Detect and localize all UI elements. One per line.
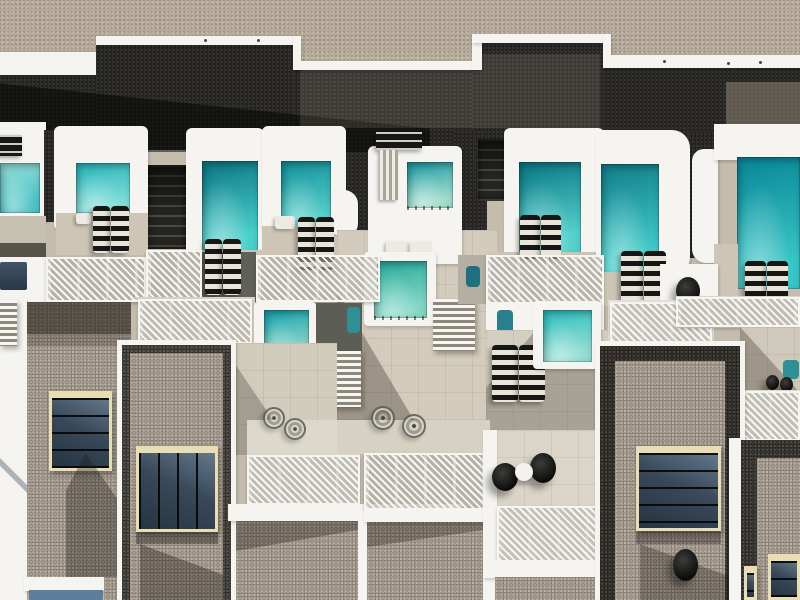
- stairs-1: [148, 165, 186, 249]
- louver-pergola-1: [433, 299, 475, 351]
- parapet-bolt: [257, 39, 260, 42]
- unit4-pool-jets: [407, 206, 453, 210]
- parapet-left: [0, 52, 96, 75]
- bean-bag: [766, 375, 779, 390]
- rooftop-gap-white: [358, 521, 367, 600]
- unit4-pool: [407, 162, 453, 208]
- bean-bag: [492, 463, 518, 491]
- lattice-railing-11: [364, 453, 490, 510]
- skylight-3: [636, 446, 721, 531]
- stairs-2: [478, 139, 506, 201]
- skylight-5: [768, 554, 800, 600]
- side-table: [515, 463, 533, 481]
- lattice-railing-10: [497, 506, 611, 562]
- parapet-e: [603, 55, 800, 68]
- lattice-railing-east: [738, 391, 800, 441]
- teal-lounger: [466, 266, 480, 287]
- parapet-bolt: [663, 60, 666, 63]
- skylight-1: [49, 391, 112, 471]
- rooftop-east-white: [729, 438, 741, 600]
- striped-towel: [205, 239, 222, 295]
- lattice-railing-2: [146, 250, 202, 302]
- striped-towel: [111, 206, 129, 253]
- parapet-bolt: [204, 39, 207, 42]
- slate-blue-wall: [29, 590, 103, 600]
- unit0-pergola: [0, 135, 22, 156]
- striped-towel: [520, 215, 540, 259]
- parapet-c: [293, 61, 474, 70]
- lattice-railing-7: [676, 297, 800, 327]
- parapet-b: [96, 36, 295, 45]
- lattice-railing-3: [256, 255, 380, 302]
- striped-towel: [223, 239, 241, 295]
- railing-11-wall: [364, 508, 497, 522]
- unit0-terrace: [0, 243, 46, 258]
- small-pool-right: [543, 310, 592, 362]
- lattice-railing-b1: [247, 455, 360, 505]
- unit0-deck: [0, 216, 46, 246]
- rooftop-b1: [236, 521, 358, 600]
- unit0-pool: [0, 163, 40, 213]
- ceiling-fan: [371, 406, 395, 430]
- rooftop-b3: [495, 577, 597, 600]
- bean-bag: [673, 549, 698, 581]
- center-pool: [374, 261, 427, 318]
- striped-towel: [541, 215, 561, 259]
- skylight-2: [136, 446, 218, 532]
- left-vent-louver: [0, 300, 17, 346]
- rooftop-left-white-band: [24, 577, 104, 591]
- unit7-deck-top: [714, 124, 800, 160]
- center-pool-jets: [374, 316, 427, 320]
- striped-towel: [93, 206, 110, 253]
- unit4-pergola: [376, 132, 422, 150]
- striped-towel: [492, 345, 518, 402]
- lattice-railing-1: [46, 257, 146, 302]
- ceiling-fan: [402, 414, 426, 438]
- unit0-dark-mat: [0, 262, 27, 290]
- ceiling-fan: [263, 407, 285, 429]
- parapet-d: [472, 34, 605, 43]
- unit3-chairs: [275, 216, 295, 229]
- ceiling-fan: [284, 418, 306, 440]
- parapet-bolt: [727, 62, 730, 65]
- lattice-railing-4: [138, 299, 252, 344]
- teal-lounger: [347, 307, 360, 333]
- unit1-chairs: [76, 213, 91, 224]
- skylight-4: [744, 566, 757, 600]
- lattice-railing-5: [486, 255, 604, 304]
- unit4-awning: [380, 150, 398, 200]
- aerial-hotel-photo: [0, 0, 800, 600]
- rooftop-b2: [367, 521, 483, 600]
- parapet-bolt: [759, 61, 762, 64]
- bean-bag: [530, 453, 556, 483]
- striped-towel: [621, 251, 643, 303]
